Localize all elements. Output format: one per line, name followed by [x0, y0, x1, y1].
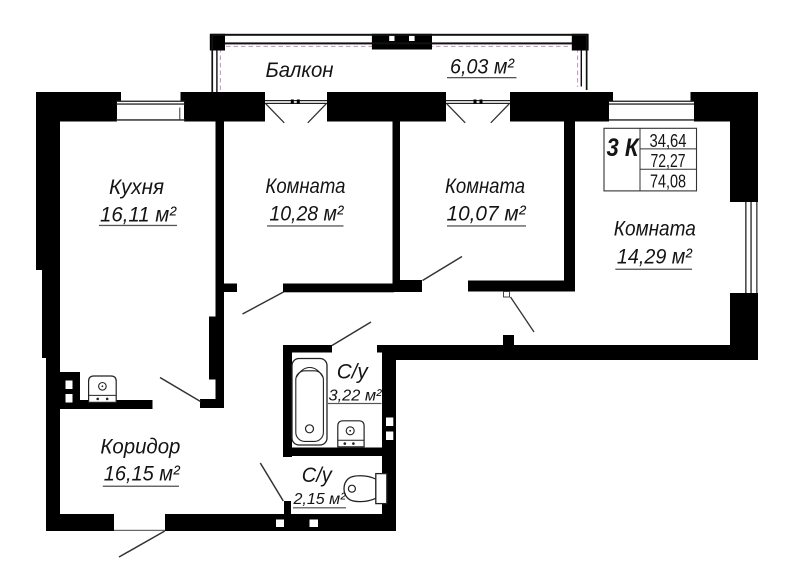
svg-text:Комната: Комната: [445, 175, 525, 198]
svg-text:С/у: С/у: [337, 361, 369, 384]
svg-text:16,15 м²: 16,15 м²: [104, 463, 181, 486]
svg-text:Балкон: Балкон: [266, 59, 334, 82]
svg-text:Комната: Комната: [265, 175, 345, 198]
svg-text:3 К: 3 К: [607, 134, 640, 162]
svg-text:34,64: 34,64: [650, 130, 687, 151]
svg-text:С/у: С/у: [302, 464, 333, 487]
svg-text:6,03 м²: 6,03 м²: [450, 56, 515, 79]
svg-text:Комната: Комната: [614, 218, 696, 241]
svg-text:74,08: 74,08: [650, 170, 686, 191]
svg-text:16,11 м²: 16,11 м²: [100, 204, 177, 227]
svg-text:10,07 м²: 10,07 м²: [447, 203, 527, 226]
svg-text:3,22 м²: 3,22 м²: [329, 387, 383, 404]
svg-text:14,29 м²: 14,29 м²: [617, 246, 693, 269]
svg-text:72,27: 72,27: [651, 150, 686, 171]
svg-text:2,15 м²: 2,15 м²: [292, 491, 346, 508]
svg-text:10,28 м²: 10,28 м²: [269, 203, 344, 226]
svg-text:Коридор: Коридор: [100, 436, 180, 459]
svg-text:Кухня: Кухня: [109, 176, 164, 199]
